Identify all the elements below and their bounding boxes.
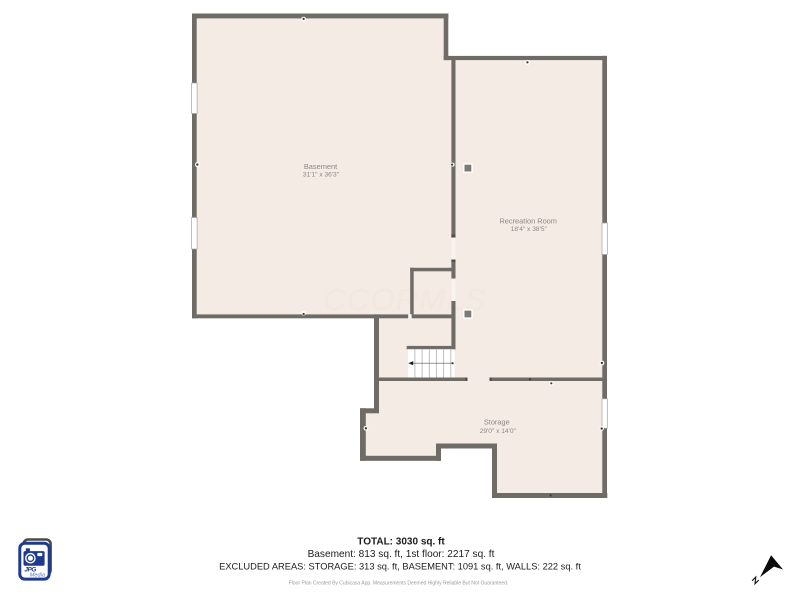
svg-text:TOTAL: 3030 sq. ft: TOTAL: 3030 sq. ft (357, 537, 445, 548)
svg-text:Media: Media (30, 573, 45, 579)
svg-text:18'4" x 38'5": 18'4" x 38'5" (511, 226, 548, 233)
svg-text:Basement: Basement (304, 162, 337, 171)
svg-text:EXCLUDED AREAS: STORAGE: 313 s: EXCLUDED AREAS: STORAGE: 313 sq. ft, BAS… (219, 561, 581, 571)
svg-text:Storage: Storage (484, 417, 510, 426)
svg-text:29'0" x 14'0": 29'0" x 14'0" (480, 428, 517, 435)
svg-text:CCORMLS: CCORMLS (323, 282, 486, 317)
svg-text:Floor Plan Created By Cubicasa: Floor Plan Created By Cubicasa App. Meas… (289, 581, 509, 587)
svg-text:Recreation Room: Recreation Room (499, 217, 557, 226)
svg-text:Basement: 813 sq. ft, 1st floo: Basement: 813 sq. ft, 1st floor: 2217 sq… (308, 549, 495, 560)
svg-text:31'1" x 36'3": 31'1" x 36'3" (303, 171, 340, 178)
